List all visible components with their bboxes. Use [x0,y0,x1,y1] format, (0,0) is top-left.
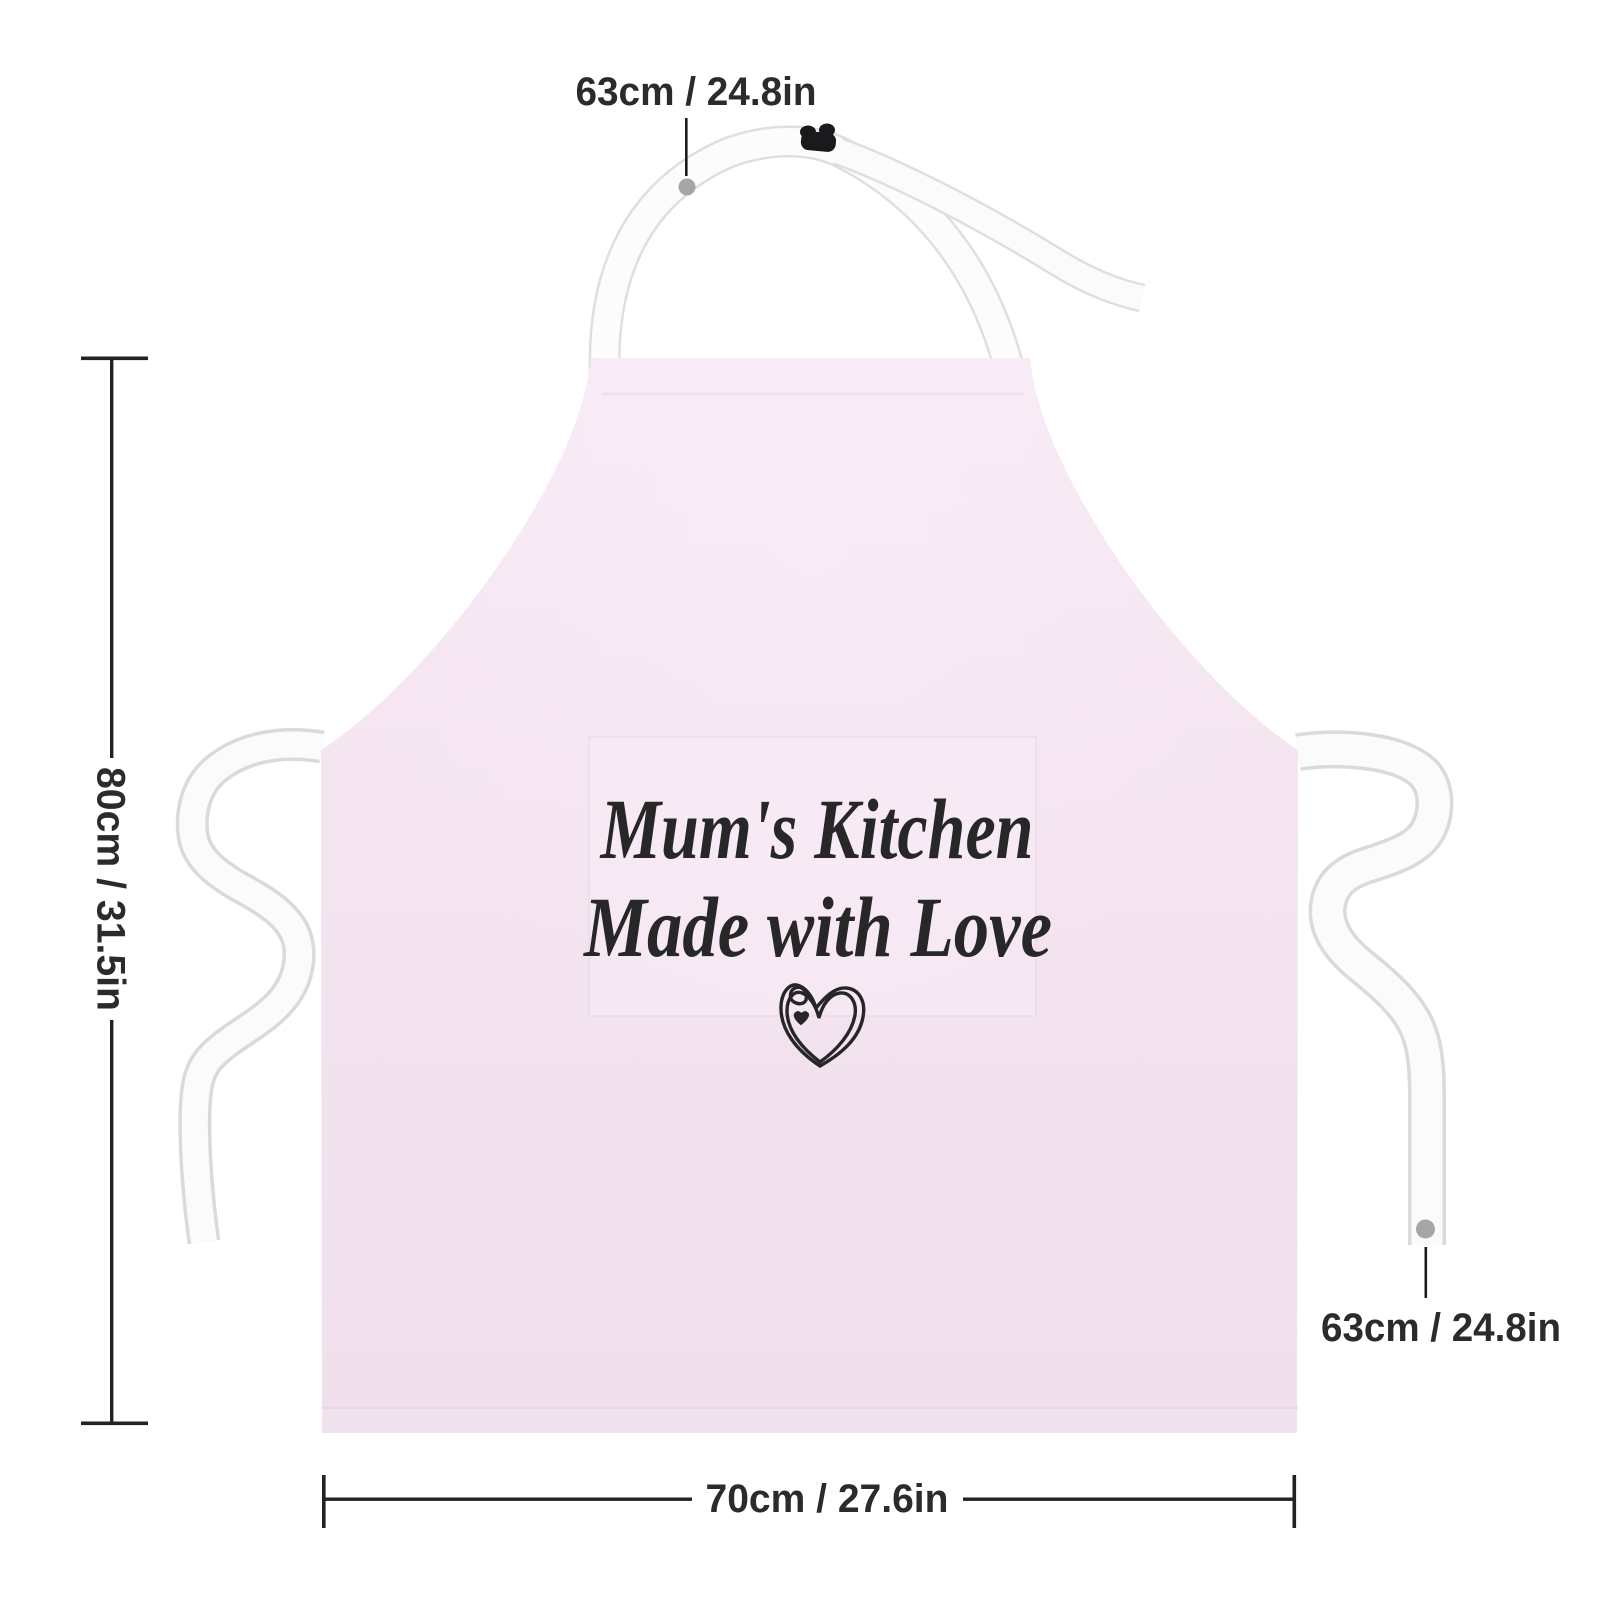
svg-text:63cm / 24.8in: 63cm / 24.8in [576,70,817,114]
svg-text:Made with Love: Made with Love [582,879,1052,975]
svg-text:Mum's Kitchen: Mum's Kitchen [599,781,1034,877]
svg-text:80cm / 31.5in: 80cm / 31.5in [89,767,133,1011]
svg-text:70cm / 27.6in: 70cm / 27.6in [706,1477,949,1521]
svg-text:63cm / 24.8in: 63cm / 24.8in [1321,1306,1561,1350]
